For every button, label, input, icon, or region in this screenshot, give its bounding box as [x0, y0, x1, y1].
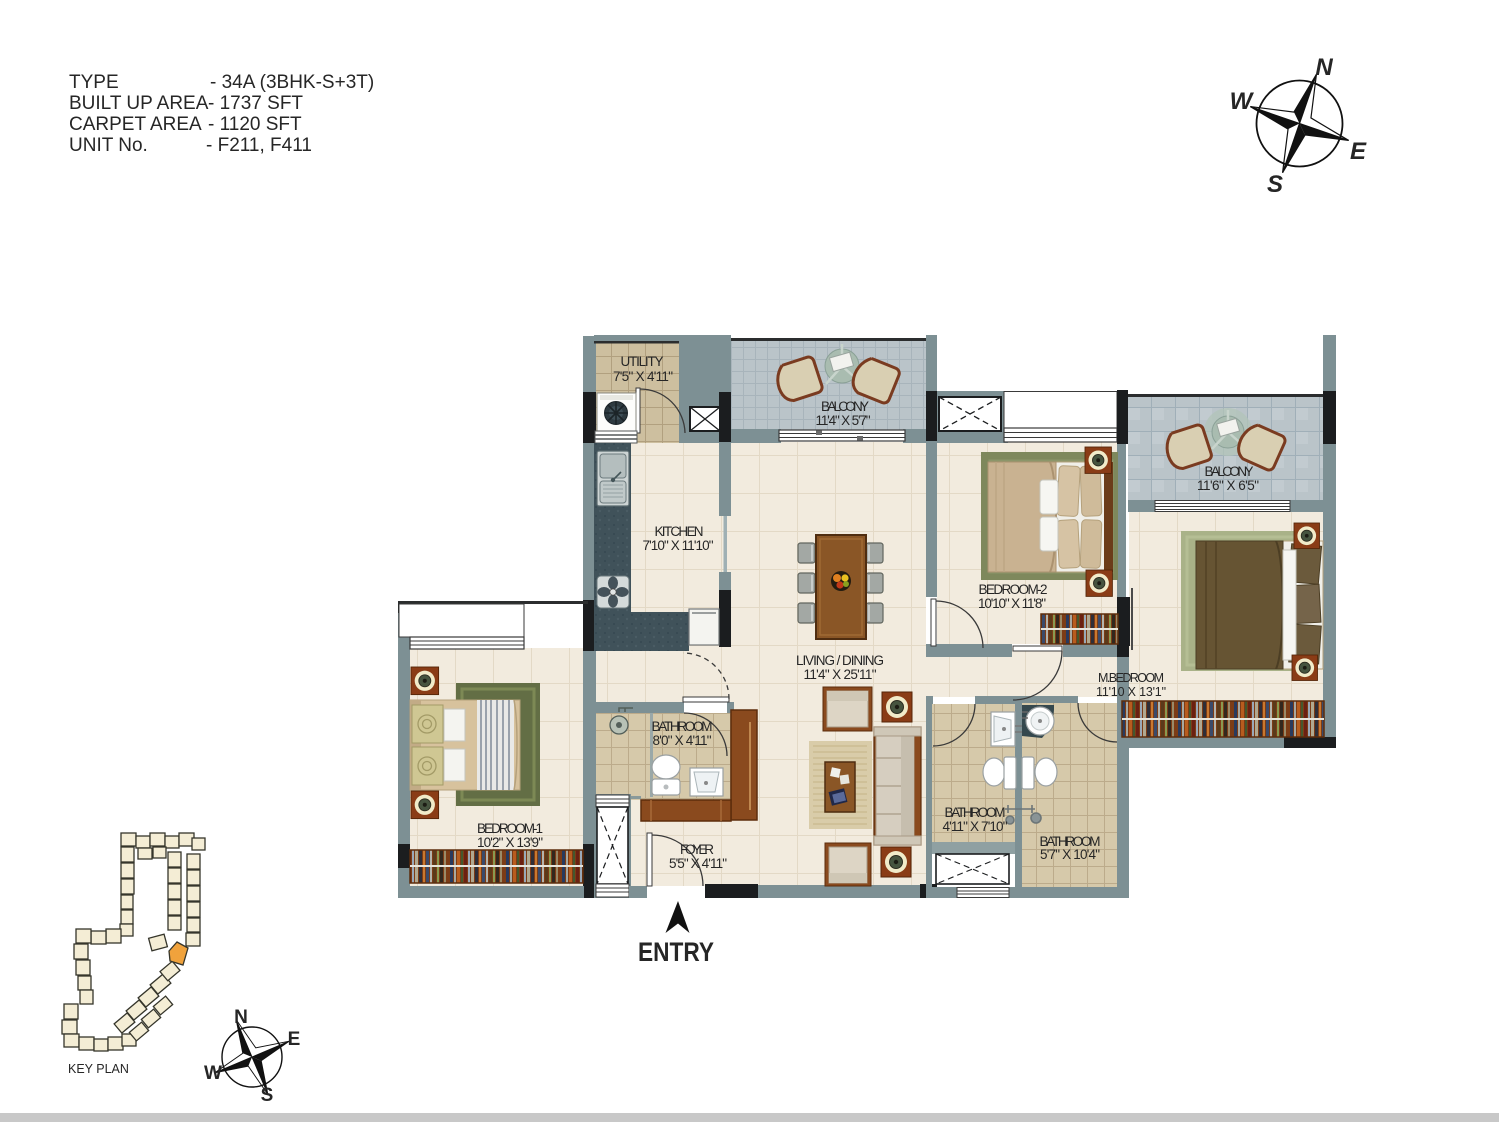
- svg-text:BALCONY: BALCONY: [821, 399, 869, 414]
- svg-text:KITCHEN: KITCHEN: [655, 524, 704, 539]
- svg-text:BEDROOM-2: BEDROOM-2: [979, 582, 1048, 597]
- svg-text:11'4" X 5'7": 11'4" X 5'7": [816, 413, 871, 428]
- svg-text:UTILITY: UTILITY: [621, 354, 664, 369]
- svg-text:11'6" X 6'5": 11'6" X 6'5": [1197, 478, 1259, 493]
- svg-text:N: N: [1315, 54, 1333, 81]
- svg-text:5'5" X 4'11": 5'5" X 4'11": [669, 856, 727, 871]
- svg-text:BUILT UP AREA: BUILT UP AREA: [69, 93, 209, 114]
- svg-text:W: W: [1230, 88, 1255, 115]
- svg-text:CARPET AREA: CARPET AREA: [69, 114, 202, 135]
- svg-text:FOYER: FOYER: [680, 842, 714, 857]
- svg-text:BALCONY: BALCONY: [1205, 464, 1254, 479]
- svg-text:S: S: [1267, 171, 1283, 198]
- svg-text:LIVING / DINING: LIVING / DINING: [796, 653, 884, 668]
- svg-text:E: E: [288, 1029, 301, 1050]
- svg-text:8'0" X 4'11": 8'0" X 4'11": [653, 733, 712, 748]
- svg-text:BEDROOM-1: BEDROOM-1: [477, 821, 543, 836]
- svg-text:4'11" X 7'10": 4'11" X 7'10": [943, 819, 1008, 834]
- svg-text:S: S: [261, 1085, 274, 1106]
- svg-text:BATHROOM: BATHROOM: [652, 719, 713, 734]
- svg-text:11'4" X 25'11": 11'4" X 25'11": [804, 667, 877, 682]
- svg-text:10'10" X 11'8": 10'10" X 11'8": [978, 596, 1046, 611]
- svg-text:ENTRY: ENTRY: [638, 937, 714, 967]
- svg-text:- F211, F411: - F211, F411: [206, 135, 312, 156]
- svg-text:- 1737 SFT: - 1737 SFT: [208, 93, 303, 114]
- svg-text:- 1120 SFT: - 1120 SFT: [208, 114, 302, 135]
- svg-text:E: E: [1350, 138, 1367, 165]
- svg-text:7'10" X 11'10": 7'10" X 11'10": [643, 538, 714, 553]
- svg-text:M.BEDROOM: M.BEDROOM: [1098, 671, 1164, 685]
- svg-text:TYPE: TYPE: [69, 72, 119, 93]
- svg-text:- 34A (3BHK-S+3T): - 34A (3BHK-S+3T): [210, 72, 374, 93]
- svg-text:KEY PLAN: KEY PLAN: [68, 1062, 129, 1076]
- svg-text:7'5" X 4'11": 7'5" X 4'11": [613, 369, 673, 384]
- svg-text:N: N: [234, 1007, 248, 1028]
- svg-text:W: W: [204, 1063, 222, 1084]
- svg-text:UNIT No.: UNIT No.: [69, 135, 148, 156]
- svg-text:10'2" X 13'9": 10'2" X 13'9": [477, 835, 543, 850]
- svg-text:5'7" X 10'4": 5'7" X 10'4": [1040, 847, 1100, 862]
- svg-text:BATHROOM: BATHROOM: [945, 805, 1006, 820]
- svg-text:11'10 X 13'1": 11'10 X 13'1": [1096, 685, 1166, 699]
